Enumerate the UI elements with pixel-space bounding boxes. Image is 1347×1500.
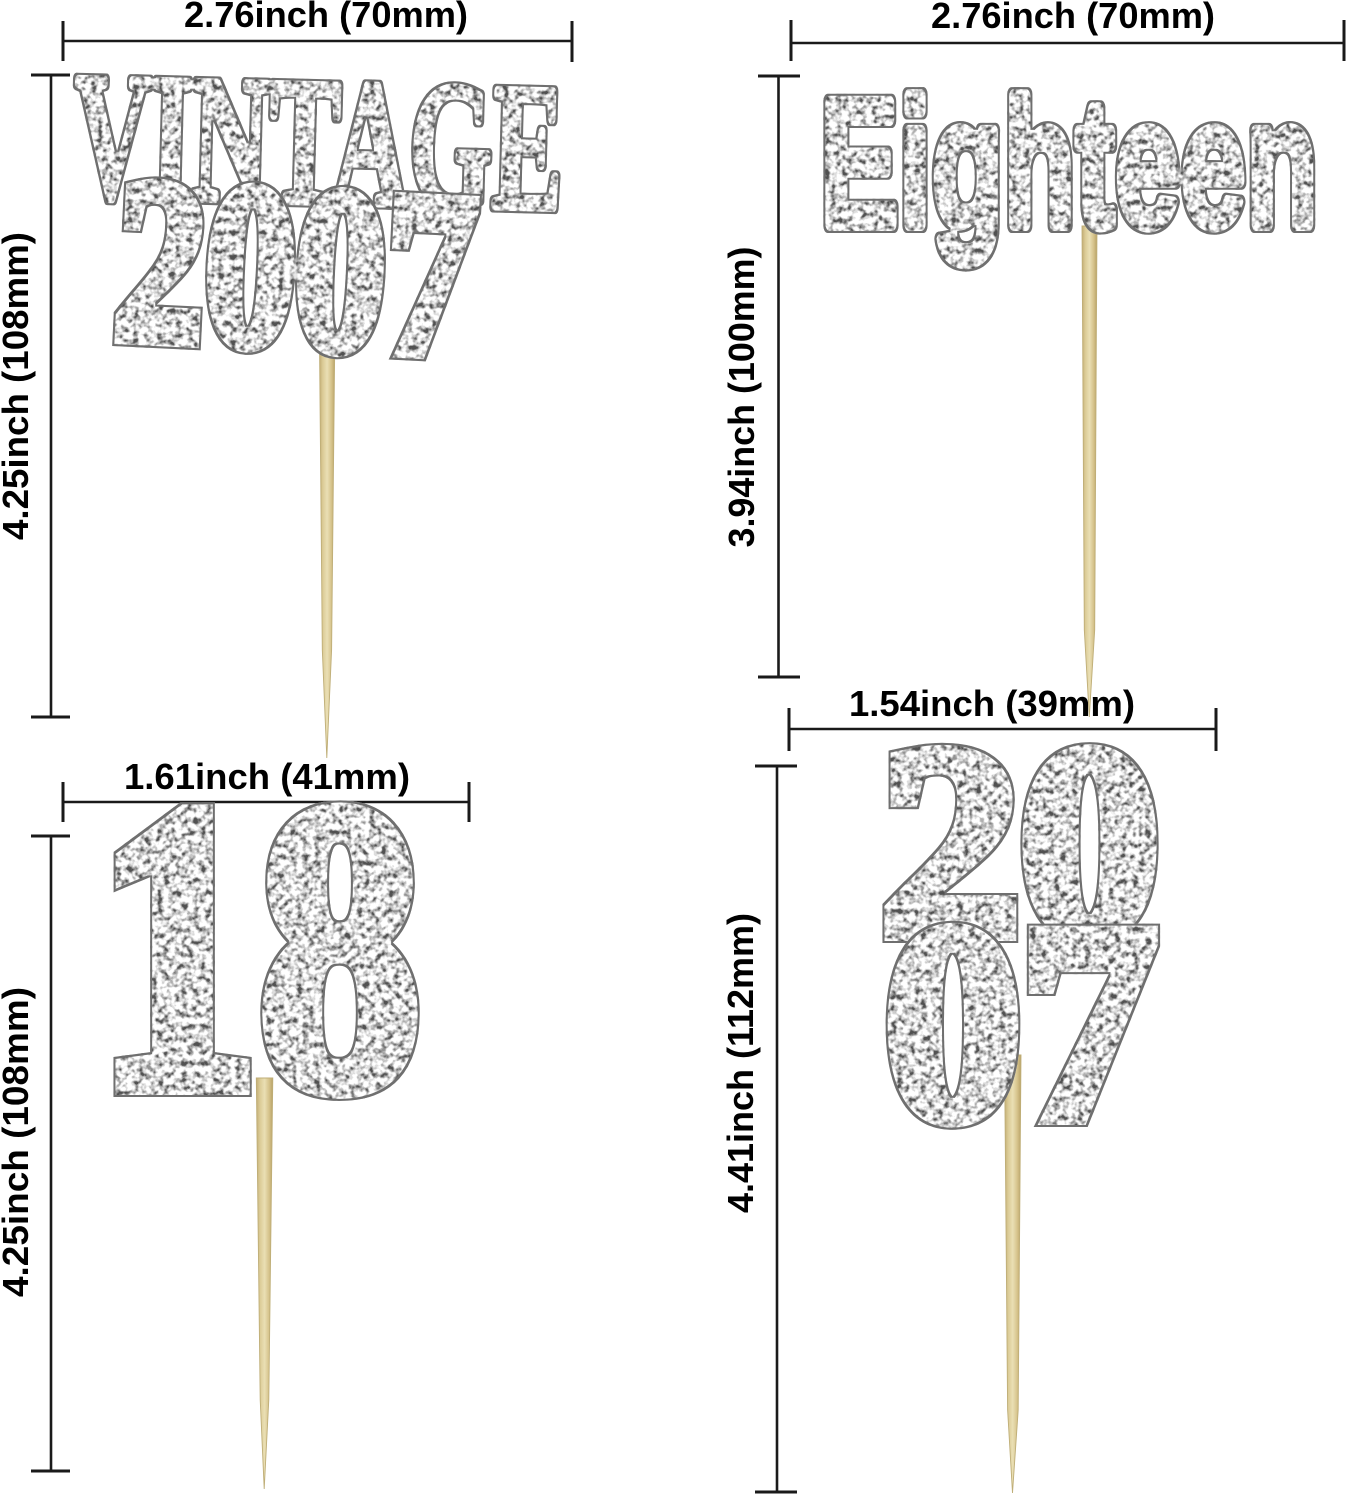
svg-text:3.94inch (100mm): 3.94inch (100mm) — [721, 247, 762, 548]
svg-text:4.25inch (108mm): 4.25inch (108mm) — [0, 987, 36, 1297]
svg-text:4.25inch (108mm): 4.25inch (108mm) — [0, 232, 36, 540]
svg-text:2.76inch (70mm): 2.76inch (70mm) — [931, 0, 1215, 36]
svg-text:2007: 2007 — [110, 131, 482, 405]
svg-text:Eighteen: Eighteen — [820, 61, 1318, 265]
svg-text:18: 18 — [97, 720, 421, 1174]
svg-text:2.76inch (70mm): 2.76inch (70mm) — [184, 0, 468, 35]
svg-text:4.41inch (112mm): 4.41inch (112mm) — [720, 913, 761, 1213]
svg-text:07: 07 — [885, 867, 1157, 1178]
